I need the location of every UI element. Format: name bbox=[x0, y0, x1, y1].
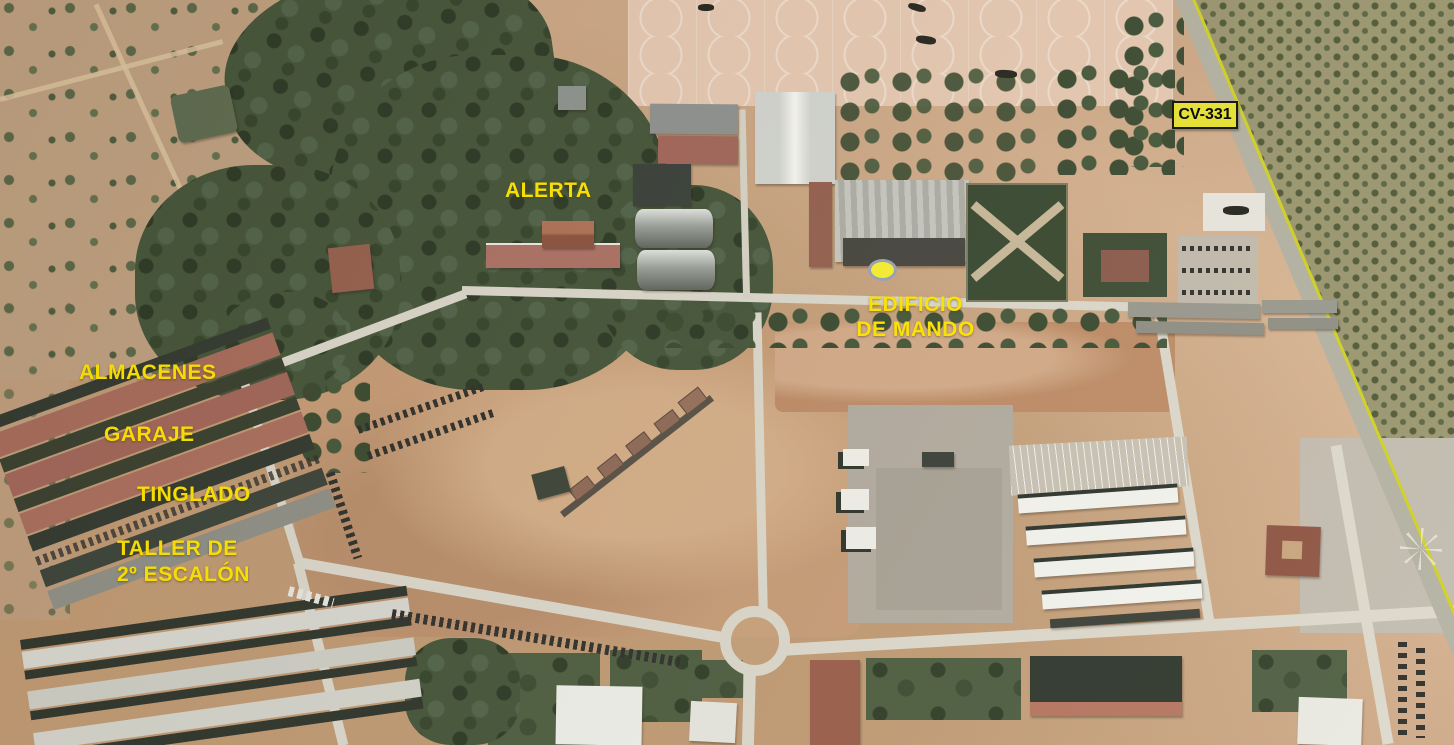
parked-cars-row bbox=[1182, 268, 1252, 273]
compass-rose-pavement bbox=[1400, 528, 1442, 570]
road-sign-cv331: CV-331 bbox=[1172, 101, 1238, 129]
parking-lot-northeast bbox=[1178, 236, 1258, 306]
label-taller: TALLER DE 2º ESCALÓN bbox=[117, 536, 250, 588]
building-white-small bbox=[841, 489, 869, 510]
building-white-small bbox=[689, 701, 737, 743]
tree-cluster bbox=[838, 68, 1043, 186]
helipad-white-patch bbox=[1203, 193, 1265, 231]
hangar-dark bbox=[633, 164, 691, 206]
warehouse-cluster-bottom-left bbox=[20, 586, 426, 745]
building-face bbox=[1030, 702, 1182, 716]
building-white-small bbox=[846, 527, 876, 549]
label-garaje: GARAJE bbox=[104, 423, 195, 447]
barracks-gray-row bbox=[1268, 318, 1338, 329]
building-red-tall bbox=[809, 182, 832, 267]
hangar-barrel-roof bbox=[635, 209, 713, 248]
tree-cluster bbox=[405, 638, 520, 745]
hut-dark bbox=[922, 452, 954, 467]
label-line: TALLER DE bbox=[117, 536, 250, 562]
barracks-gray-row bbox=[1136, 321, 1264, 335]
helicopter bbox=[1223, 206, 1249, 215]
helicopter bbox=[698, 4, 714, 11]
barracks-white bbox=[1042, 579, 1203, 609]
lawn bbox=[866, 658, 1021, 720]
parked-cars-row bbox=[1182, 246, 1252, 251]
building-white-church bbox=[555, 685, 642, 745]
helicopter bbox=[995, 69, 1017, 78]
label-almacenes: ALMACENES bbox=[79, 361, 217, 385]
building-white-gable bbox=[755, 92, 835, 184]
hangar-barrel-roof bbox=[637, 250, 715, 290]
tree-cluster bbox=[1055, 65, 1175, 175]
label-tinglado: TINGLADO bbox=[137, 483, 251, 507]
building-red-roof bbox=[658, 136, 738, 165]
building-red-bottom bbox=[810, 660, 860, 745]
barracks-gray-row bbox=[1262, 300, 1337, 313]
roundabout bbox=[720, 606, 790, 676]
garden-square bbox=[966, 183, 1068, 302]
building-white-small bbox=[843, 449, 869, 466]
label-line: EDIFICIO bbox=[838, 292, 993, 317]
building-white-small bbox=[1297, 697, 1363, 745]
building-red-small bbox=[328, 244, 374, 293]
building-inner bbox=[1101, 250, 1149, 282]
barracks-white bbox=[1026, 515, 1187, 545]
satellite-map: ALERTA EDIFICIO DE MANDO ALMACENES GARAJ… bbox=[0, 0, 1454, 745]
courtyard bbox=[1282, 541, 1303, 560]
building-courtyard bbox=[1265, 525, 1321, 577]
edificio-de-mando-marker bbox=[868, 259, 897, 281]
building-dark-long bbox=[1030, 656, 1182, 716]
road-south-exit bbox=[742, 666, 756, 745]
label-alerta: ALERTA bbox=[505, 179, 592, 203]
barracks-white bbox=[1034, 547, 1195, 577]
parked-cars-column bbox=[1398, 642, 1407, 737]
parade-ground-inner bbox=[876, 468, 1002, 610]
hedge-square bbox=[1083, 233, 1167, 297]
building-alerta-gable bbox=[542, 221, 594, 248]
hut-gray bbox=[558, 86, 586, 110]
label-line: DE MANDO bbox=[838, 317, 993, 342]
parked-cars-row bbox=[1182, 290, 1252, 295]
barracks-gray-row bbox=[1128, 302, 1260, 319]
building-gray-roof bbox=[650, 104, 738, 135]
edificio-de-mando-building bbox=[843, 238, 965, 266]
label-line: 2º ESCALÓN bbox=[117, 562, 250, 588]
label-edificio-de-mando: EDIFICIO DE MANDO bbox=[838, 292, 993, 342]
parked-cars-column bbox=[1416, 648, 1425, 738]
